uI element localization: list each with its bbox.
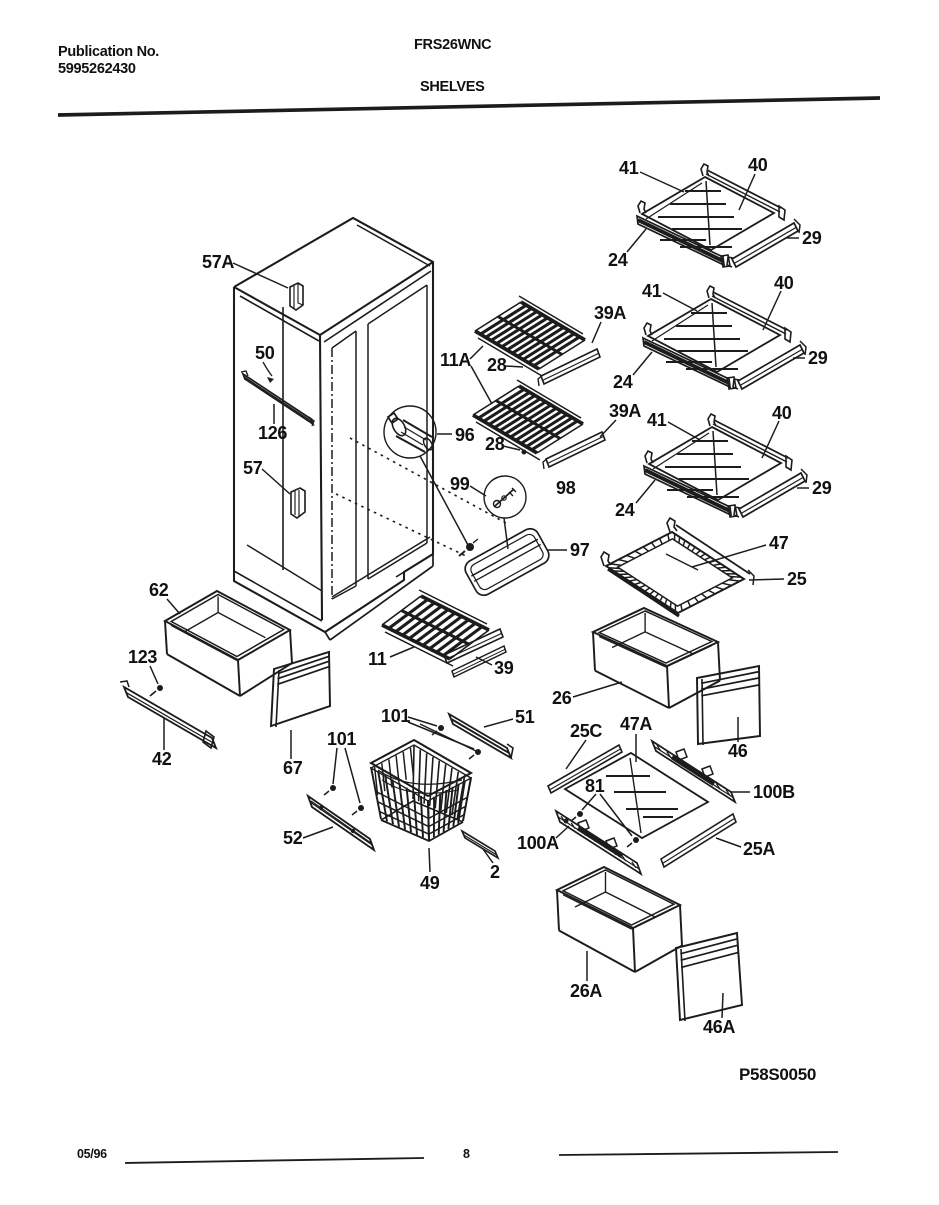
svg-text:57: 57 (243, 458, 263, 478)
svg-text:41: 41 (642, 281, 662, 301)
svg-text:52: 52 (283, 828, 303, 848)
svg-text:P58S0050: P58S0050 (739, 1065, 816, 1084)
svg-text:81: 81 (585, 776, 605, 796)
svg-text:62: 62 (149, 580, 169, 600)
svg-text:98: 98 (556, 478, 576, 498)
svg-text:29: 29 (812, 478, 832, 498)
svg-text:47: 47 (769, 533, 789, 553)
svg-text:2: 2 (490, 862, 500, 882)
svg-text:25A: 25A (743, 839, 775, 859)
svg-text:100B: 100B (753, 782, 795, 802)
svg-text:25C: 25C (570, 721, 602, 741)
svg-text:26A: 26A (570, 981, 602, 1001)
svg-text:41: 41 (647, 410, 667, 430)
svg-text:25: 25 (787, 569, 807, 589)
svg-text:40: 40 (774, 273, 794, 293)
svg-text:24: 24 (613, 372, 633, 392)
svg-text:67: 67 (283, 758, 303, 778)
svg-text:96: 96 (455, 425, 475, 445)
svg-text:29: 29 (802, 228, 822, 248)
svg-text:11A: 11A (440, 350, 471, 370)
svg-text:26: 26 (552, 688, 572, 708)
svg-text:101: 101 (381, 706, 410, 726)
svg-text:46: 46 (728, 741, 748, 761)
svg-text:24: 24 (615, 500, 635, 520)
svg-text:28: 28 (487, 355, 507, 375)
svg-text:24: 24 (608, 250, 628, 270)
svg-text:8: 8 (463, 1147, 470, 1161)
svg-text:101: 101 (327, 729, 356, 749)
svg-text:40: 40 (748, 155, 768, 175)
svg-text:39A: 39A (594, 303, 626, 323)
svg-text:39A: 39A (609, 401, 641, 421)
svg-text:28: 28 (485, 434, 505, 454)
svg-text:Publication No.: Publication No. (58, 44, 159, 60)
svg-text:50: 50 (255, 343, 275, 363)
svg-text:40: 40 (772, 403, 792, 423)
svg-text:51: 51 (515, 707, 535, 727)
svg-text:123: 123 (128, 647, 157, 667)
svg-text:57A: 57A (202, 252, 234, 272)
svg-text:SHELVES: SHELVES (420, 79, 485, 95)
svg-text:47A: 47A (620, 714, 652, 734)
svg-text:49: 49 (420, 873, 440, 893)
svg-text:11: 11 (368, 649, 387, 669)
svg-text:29: 29 (808, 348, 828, 368)
svg-text:39: 39 (494, 658, 514, 678)
svg-text:99: 99 (450, 474, 470, 494)
svg-text:42: 42 (152, 749, 172, 769)
svg-text:FRS26WNC: FRS26WNC (414, 37, 492, 53)
svg-text:41: 41 (619, 158, 639, 178)
svg-text:05/96: 05/96 (77, 1147, 107, 1161)
svg-text:46A: 46A (703, 1017, 735, 1037)
svg-text:97: 97 (570, 540, 590, 560)
svg-text:5995262430: 5995262430 (58, 61, 136, 77)
svg-text:100A: 100A (517, 833, 559, 853)
svg-text:126: 126 (258, 423, 287, 443)
